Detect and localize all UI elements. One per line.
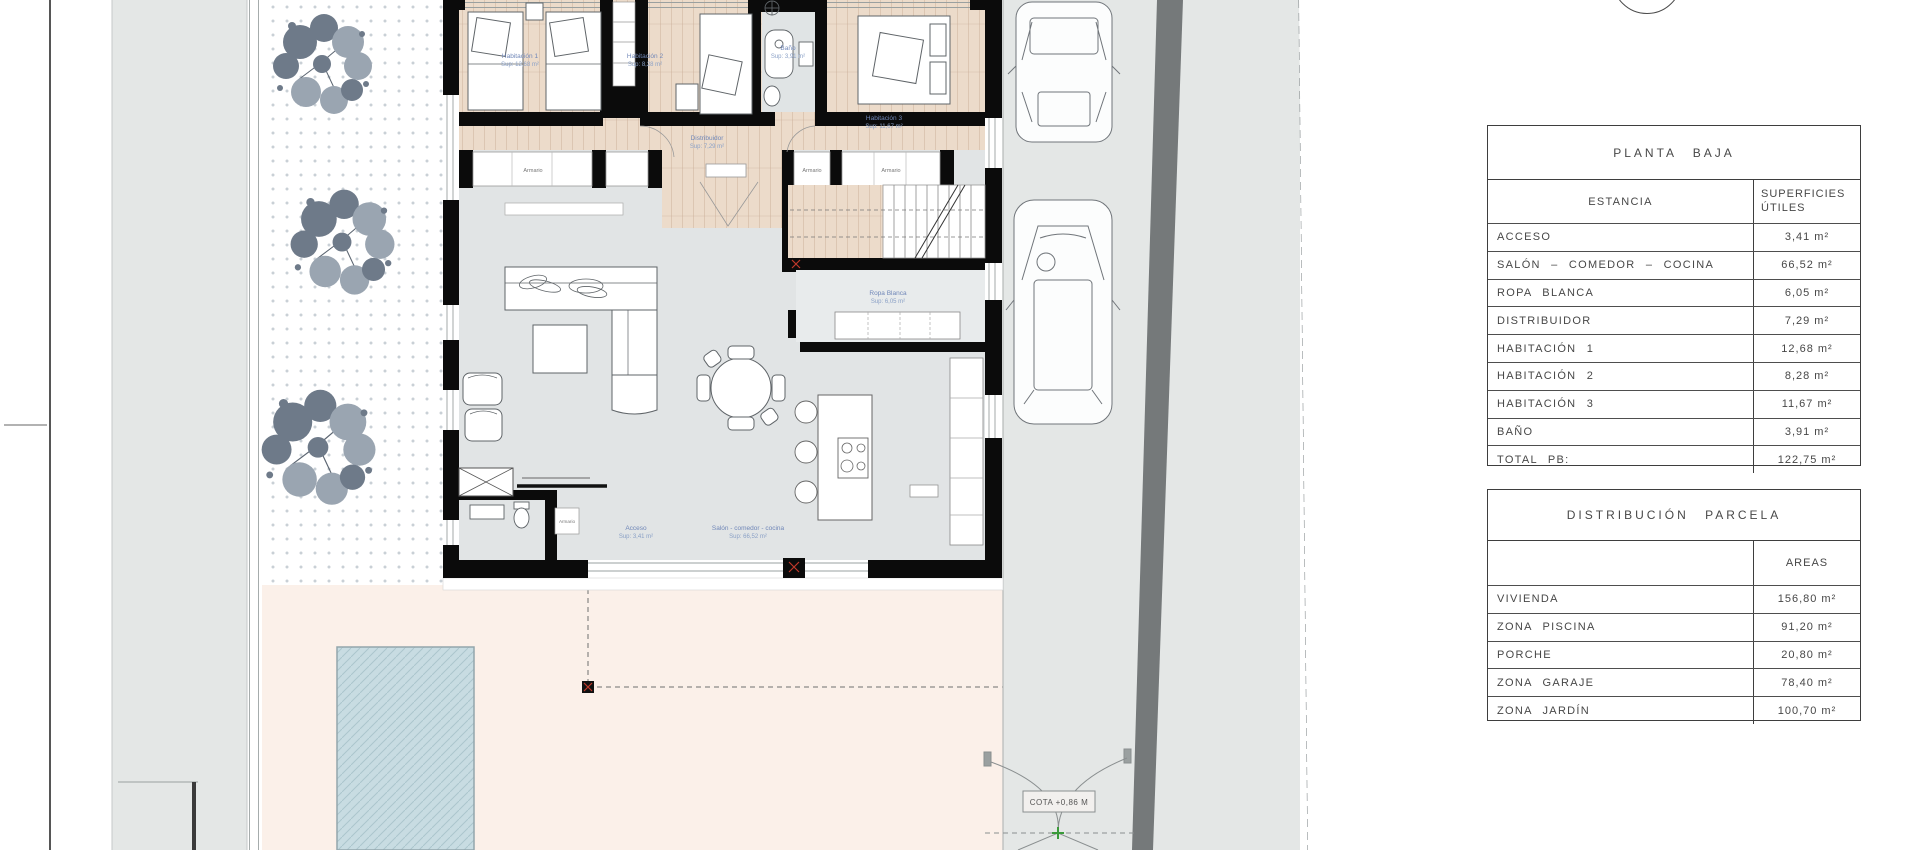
room-sup: Sup: 12,68 m² [501, 62, 539, 68]
table-row: ZONA JARDÍN 100,70 m² [1488, 697, 1860, 724]
table-row: DISTRIBUIDOR 7,29 m² [1488, 307, 1860, 335]
stool [795, 401, 817, 423]
room-label: Acceso [625, 525, 647, 532]
area-cell: 20,80 m² [1754, 642, 1860, 669]
table-row: ZONA PISCINA 91,20 m² [1488, 614, 1860, 642]
coffee-table [533, 325, 587, 373]
porch-step [443, 578, 1003, 590]
room-sup: Sup: 3,41 m² [619, 534, 653, 540]
table-header: ESTANCIA SUPERFICIES ÚTILES [1488, 180, 1860, 224]
cota-box [706, 164, 746, 177]
hall-wood-floor [662, 128, 782, 228]
table-title: PLANTA BAJA [1488, 126, 1860, 180]
zona-cell: PORCHE [1488, 642, 1754, 669]
table-row: HABITACIÓN 2 8,28 m² [1488, 363, 1860, 391]
closet-label: Armario [881, 168, 900, 174]
closet-label: Armario [559, 519, 576, 524]
area-cell: 78,40 m² [1754, 669, 1860, 696]
sideboard [505, 203, 623, 215]
room-label: Distribuidor [691, 135, 725, 142]
estancia-header: ESTANCIA [1488, 180, 1754, 223]
closet-label: Armario [802, 168, 821, 174]
laundry-counter [835, 312, 960, 339]
car-icon [1006, 200, 1120, 424]
wardrobe-shelves [613, 2, 635, 86]
superficie-cell: 122,75 m² [1754, 446, 1860, 473]
estancia-cell: HABITACIÓN 2 [1488, 363, 1754, 390]
superficie-cell: 12,68 m² [1754, 335, 1860, 362]
estancia-cell: TOTAL PB: [1488, 446, 1754, 473]
table-row: SALÓN – COMEDOR – COCINA 66,52 m² [1488, 252, 1860, 280]
room-label: Baño [780, 45, 796, 52]
areas-header: AREAS [1754, 541, 1860, 585]
superficies-header-line2: ÚTILES [1761, 202, 1806, 215]
table-header: AREAS [1488, 541, 1860, 586]
room-sup: Sup: 66,52 m² [729, 534, 767, 540]
empty-header [1488, 541, 1754, 585]
side-road [112, 0, 247, 850]
room-label: Habitación 2 [627, 53, 664, 60]
table-title: DISTRIBUCIÓN PARCELA [1488, 490, 1860, 541]
gate-cota-label: COTA +0,86 M [1023, 791, 1095, 812]
room-sup: Sup: 7,29 m² [690, 144, 724, 150]
estancia-cell: ACCESO [1488, 224, 1754, 251]
wall-stub [192, 782, 196, 850]
table-row: ROPA BLANCA 6,05 m² [1488, 280, 1860, 308]
room-sup: Sup: 8,28 m² [628, 62, 662, 68]
table-row: ZONA GARAJE 78,40 m² [1488, 669, 1860, 697]
area-cell: 100,70 m² [1754, 697, 1860, 724]
superficie-cell: 6,05 m² [1754, 280, 1860, 307]
fireplace [459, 468, 513, 496]
table-row: BAÑO 3,91 m² [1488, 419, 1860, 447]
estancia-cell: HABITACIÓN 1 [1488, 335, 1754, 362]
estancia-cell: DISTRIBUIDOR [1488, 307, 1754, 334]
floor-plan: COTA +0,86 M [0, 0, 1470, 850]
table-row-total: TOTAL PB: 122,75 m² [1488, 446, 1860, 473]
superficie-cell: 11,67 m² [1754, 391, 1860, 418]
superficie-cell: 7,29 m² [1754, 307, 1860, 334]
estancia-cell: BAÑO [1488, 419, 1754, 446]
distribucion-parcela-table: DISTRIBUCIÓN PARCELA AREAS VIVIENDA 156,… [1487, 489, 1861, 721]
cota-text: COTA +0,86 M [1030, 798, 1089, 807]
area-cell: 156,80 m² [1754, 586, 1860, 613]
zona-cell: ZONA GARAJE [1488, 669, 1754, 696]
estancia-cell: ROPA BLANCA [1488, 280, 1754, 307]
table-row: ACCESO 3,41 m² [1488, 224, 1860, 252]
estancia-cell: HABITACIÓN 3 [1488, 391, 1754, 418]
drawing-sheet: COTA +0,86 M [0, 0, 1920, 850]
superficies-header: SUPERFICIES ÚTILES [1754, 180, 1860, 223]
staircase [788, 185, 985, 258]
zona-cell: VIVIENDA [1488, 586, 1754, 613]
area-cell: 91,20 m² [1754, 614, 1860, 641]
superficie-cell: 3,91 m² [1754, 419, 1860, 446]
room-label: Salón - comedor - cocina [712, 525, 785, 532]
kitchen-island [818, 395, 872, 520]
north-circle-icon [1612, 0, 1682, 14]
house: Armario Armario Armario Armario [443, 0, 1003, 691]
room-label: Ropa Blanca [869, 290, 907, 297]
room-sup: Sup: 3,91 m² [771, 54, 805, 60]
table-row: HABITACIÓN 3 11,67 m² [1488, 391, 1860, 419]
bedroom3-bed [858, 16, 950, 104]
planta-baja-table: PLANTA BAJA ESTANCIA SUPERFICIES ÚTILES … [1487, 125, 1861, 466]
table-row: PORCHE 20,80 m² [1488, 642, 1860, 670]
table-row: HABITACIÓN 1 12,68 m² [1488, 335, 1860, 363]
superficie-cell: 3,41 m² [1754, 224, 1860, 251]
room-label: Habitación 3 [866, 115, 903, 122]
zona-cell: ZONA JARDÍN [1488, 697, 1754, 724]
superficies-header-line1: SUPERFICIES [1761, 188, 1845, 201]
pool [337, 647, 474, 850]
car-icon [1008, 2, 1120, 142]
estancia-cell: SALÓN – COMEDOR – COCINA [1488, 252, 1754, 279]
table-row: VIVIENDA 156,80 m² [1488, 586, 1860, 614]
stool [795, 481, 817, 503]
room-label: Habitación 1 [502, 53, 539, 60]
stool [795, 441, 817, 463]
closet-label: Armario [523, 168, 542, 174]
room-sup: Sup: 11,67 m² [865, 124, 902, 130]
zona-cell: ZONA PISCINA [1488, 614, 1754, 641]
superficie-cell: 8,28 m² [1754, 363, 1860, 390]
superficie-cell: 66,52 m² [1754, 252, 1860, 279]
room-sup: Sup: 6,05 m² [871, 299, 905, 305]
